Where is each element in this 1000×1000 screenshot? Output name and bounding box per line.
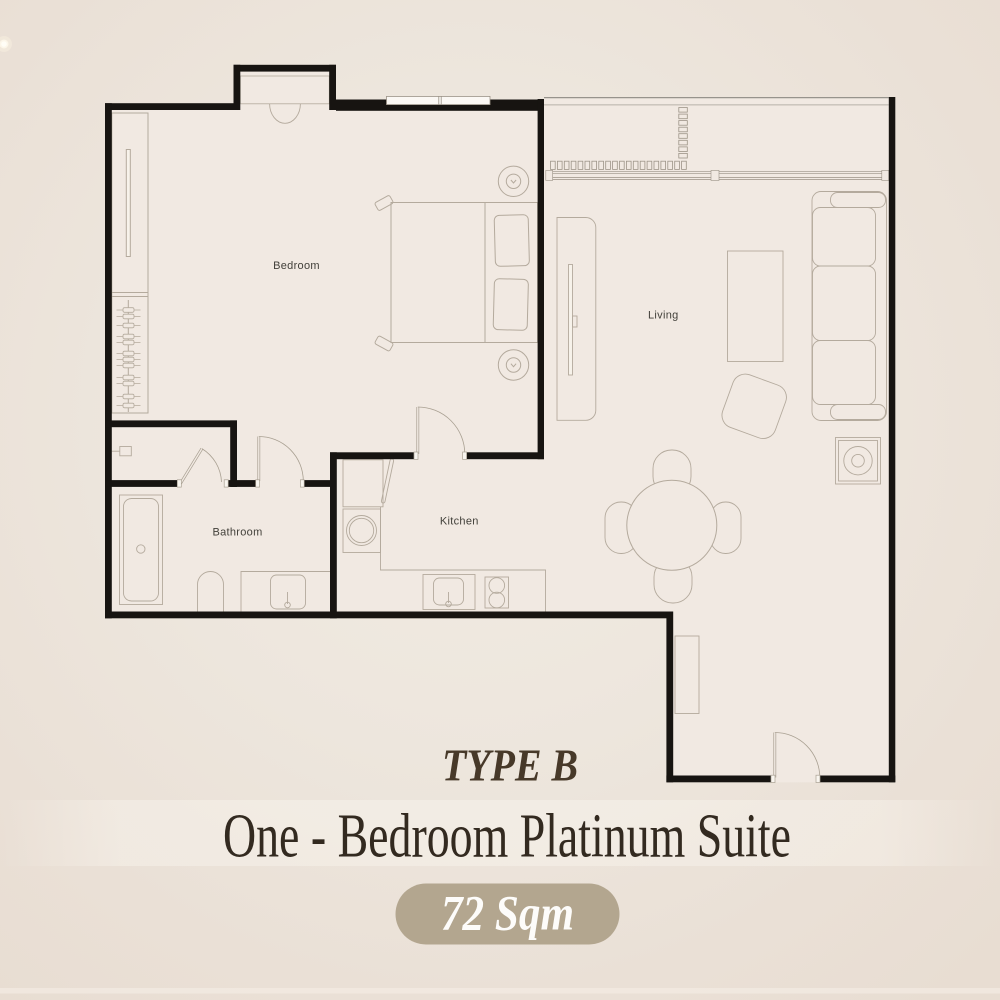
svg-text:72 Sqm: 72 Sqm [441,884,574,940]
svg-text:Living: Living [648,310,679,322]
svg-text:Bathroom: Bathroom [212,527,262,539]
svg-text:One - Bedroom Platinum Suite: One - Bedroom Platinum Suite [223,803,791,871]
svg-text:TYPE B: TYPE B [442,740,578,791]
svg-text:Bedroom: Bedroom [273,260,320,272]
svg-text:Kitchen: Kitchen [440,516,479,528]
